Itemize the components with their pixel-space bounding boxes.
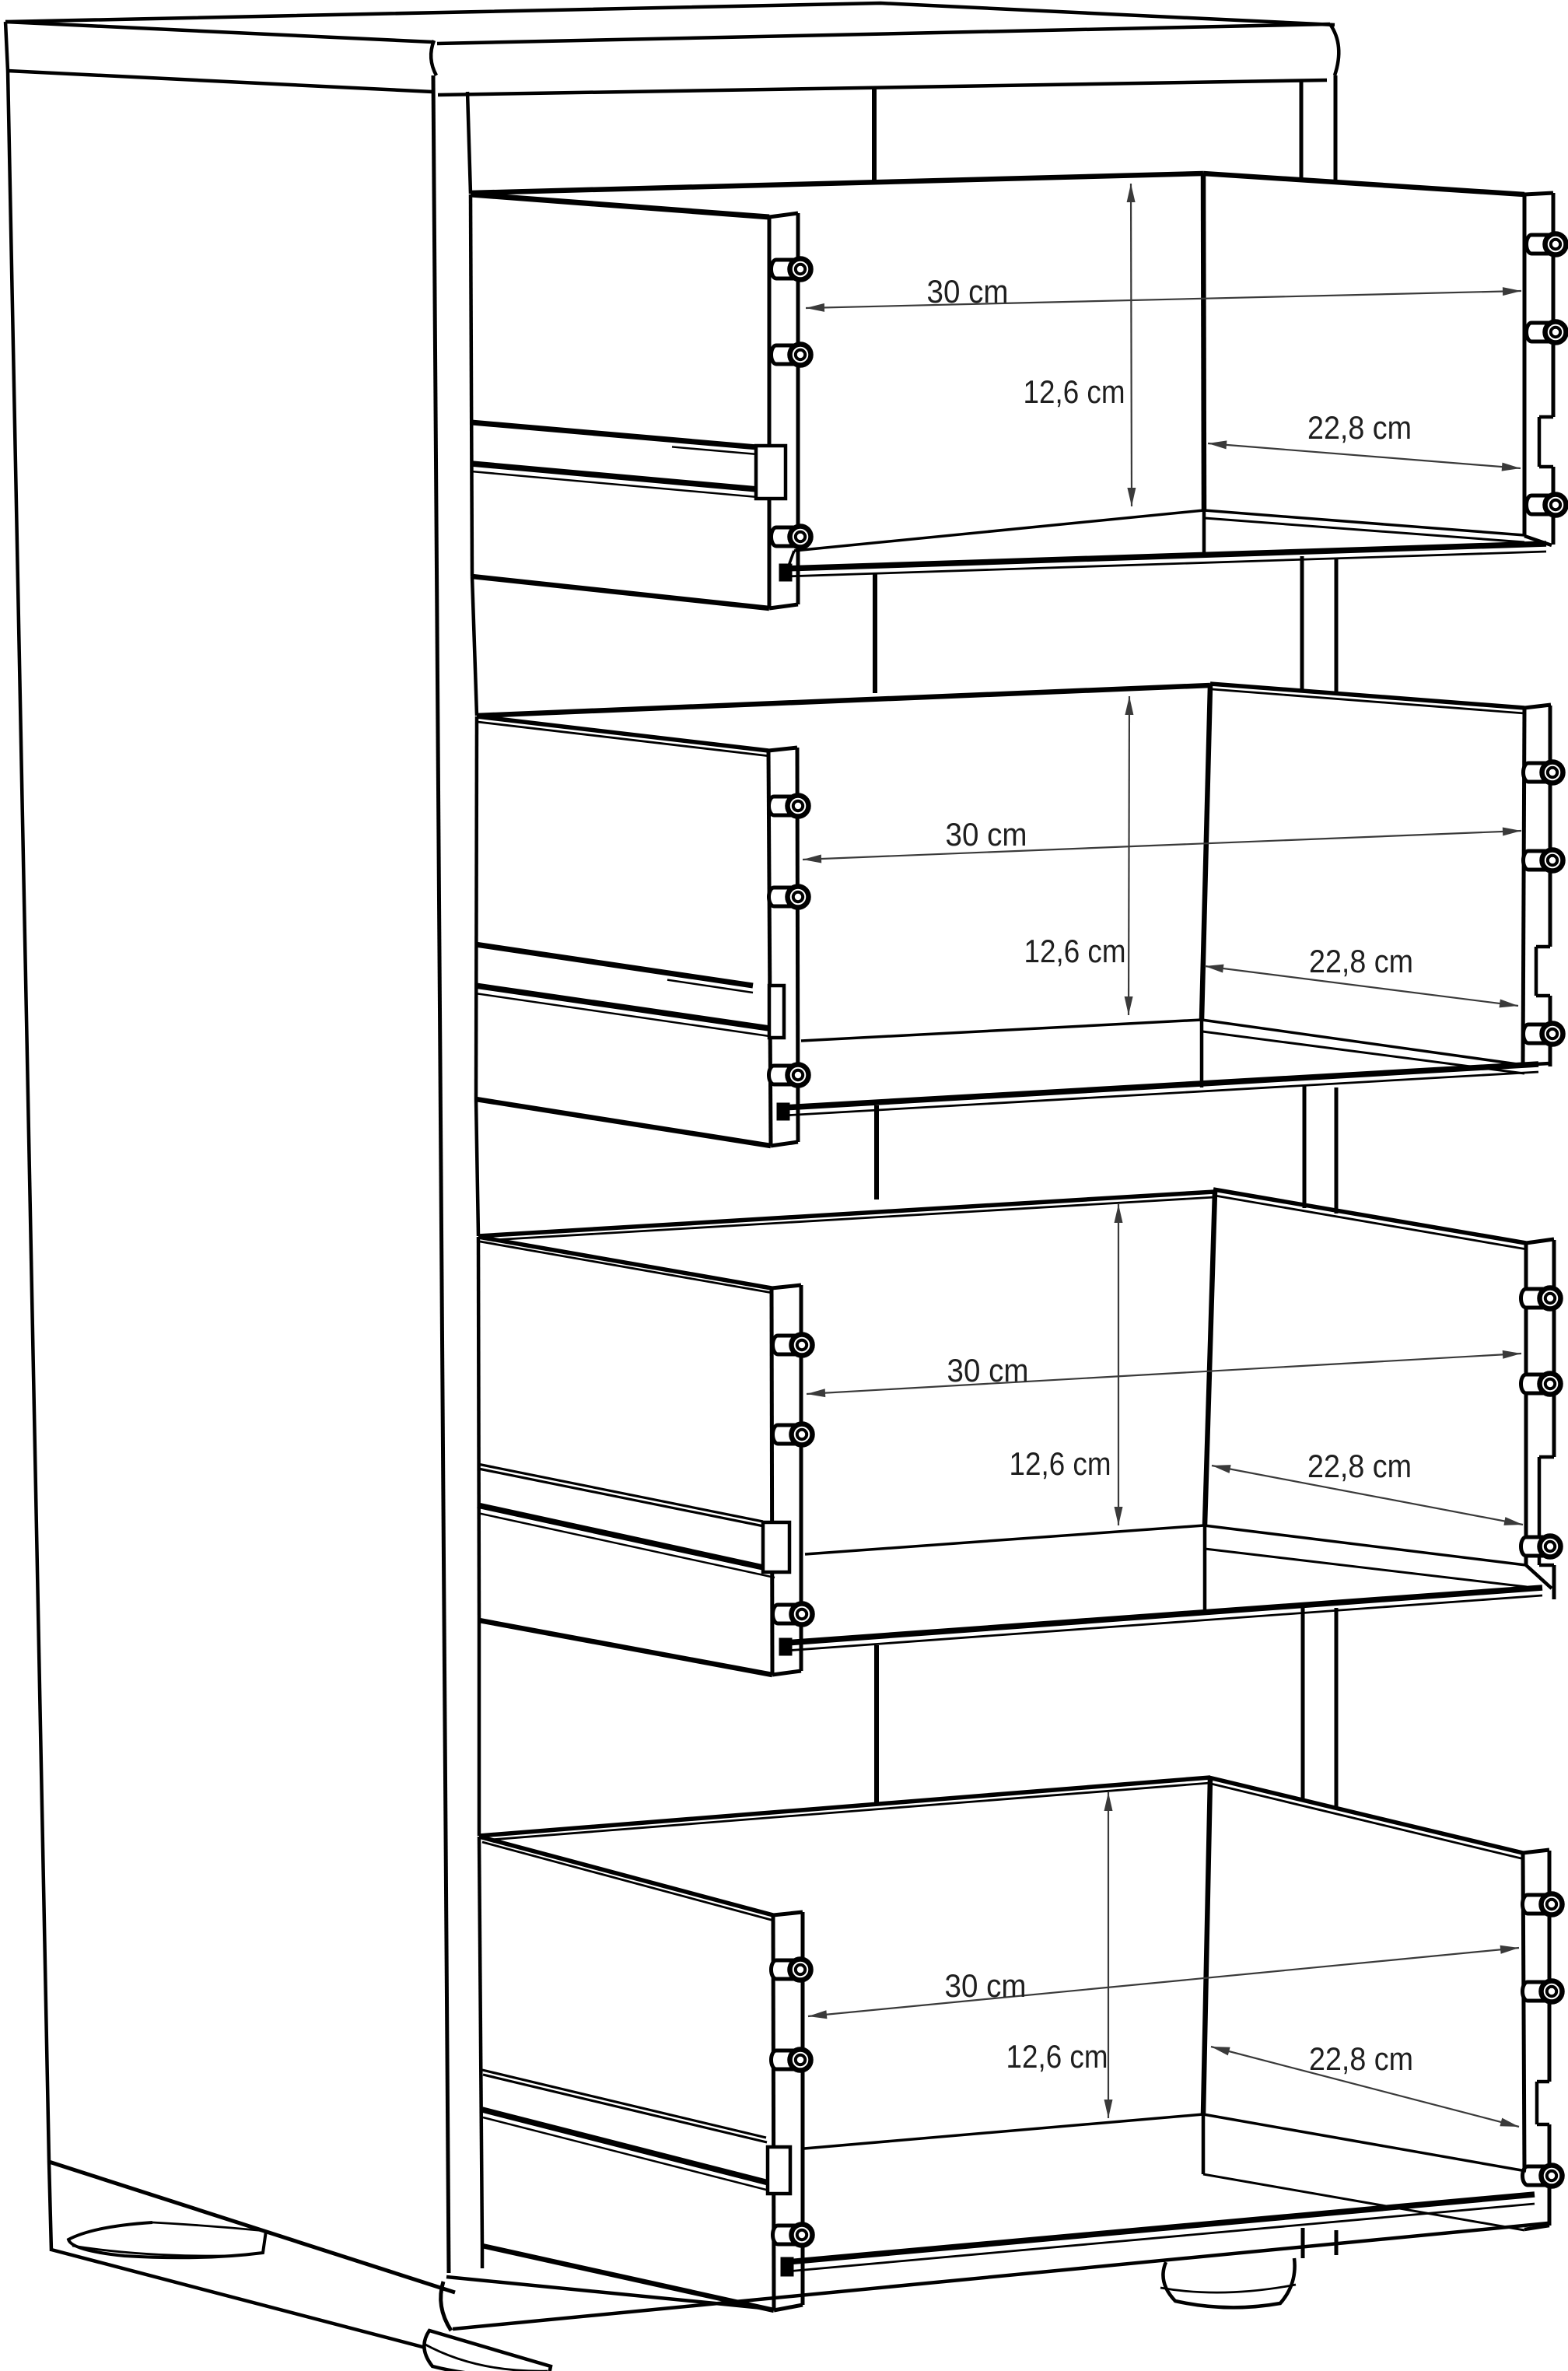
svg-text:30 cm: 30 cm [945, 1967, 1027, 2004]
svg-text:12,6 cm: 12,6 cm [1024, 373, 1125, 410]
svg-text:22,8 cm: 22,8 cm [1309, 943, 1413, 979]
svg-text:12,6 cm: 12,6 cm [1024, 933, 1126, 969]
svg-text:22,8 cm: 22,8 cm [1307, 1448, 1412, 1484]
svg-text:30 cm: 30 cm [946, 816, 1027, 853]
svg-text:30 cm: 30 cm [947, 1352, 1029, 1389]
svg-text:12,6 cm: 12,6 cm [1010, 1445, 1111, 1482]
svg-text:22,8 cm: 22,8 cm [1307, 409, 1412, 446]
svg-text:12,6 cm: 12,6 cm [1006, 2038, 1108, 2075]
svg-text:22,8 cm: 22,8 cm [1309, 2040, 1413, 2077]
svg-text:30 cm: 30 cm [927, 273, 1009, 310]
